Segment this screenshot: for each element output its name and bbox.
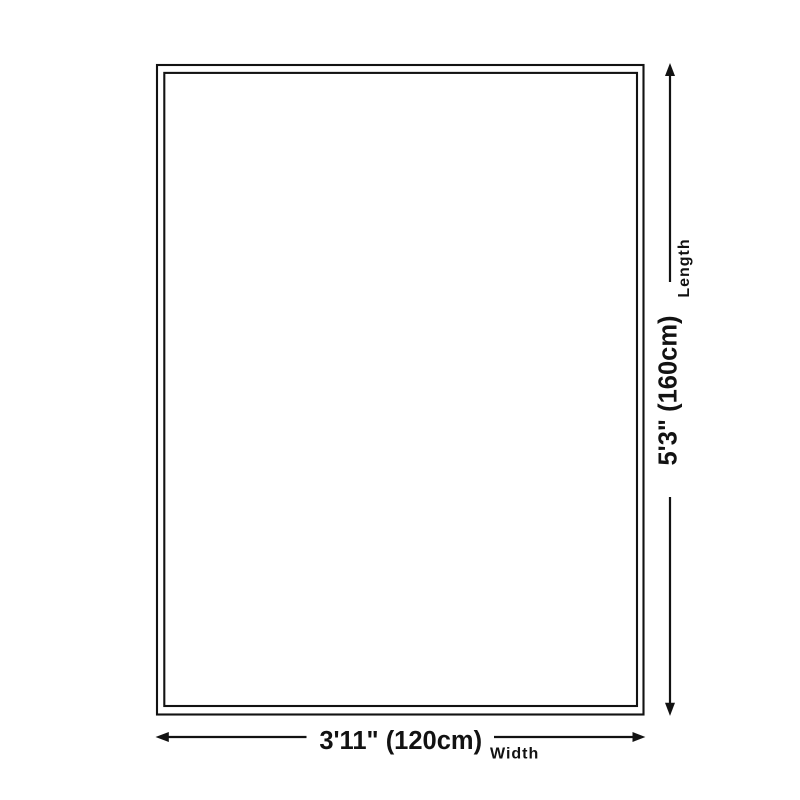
svg-text:Length: Length [676, 238, 693, 297]
svg-text:5'3" (160cm): 5'3" (160cm) [655, 316, 683, 466]
svg-text:Width: Width [490, 746, 539, 763]
svg-text:3'11" (120cm): 3'11" (120cm) [319, 727, 482, 755]
